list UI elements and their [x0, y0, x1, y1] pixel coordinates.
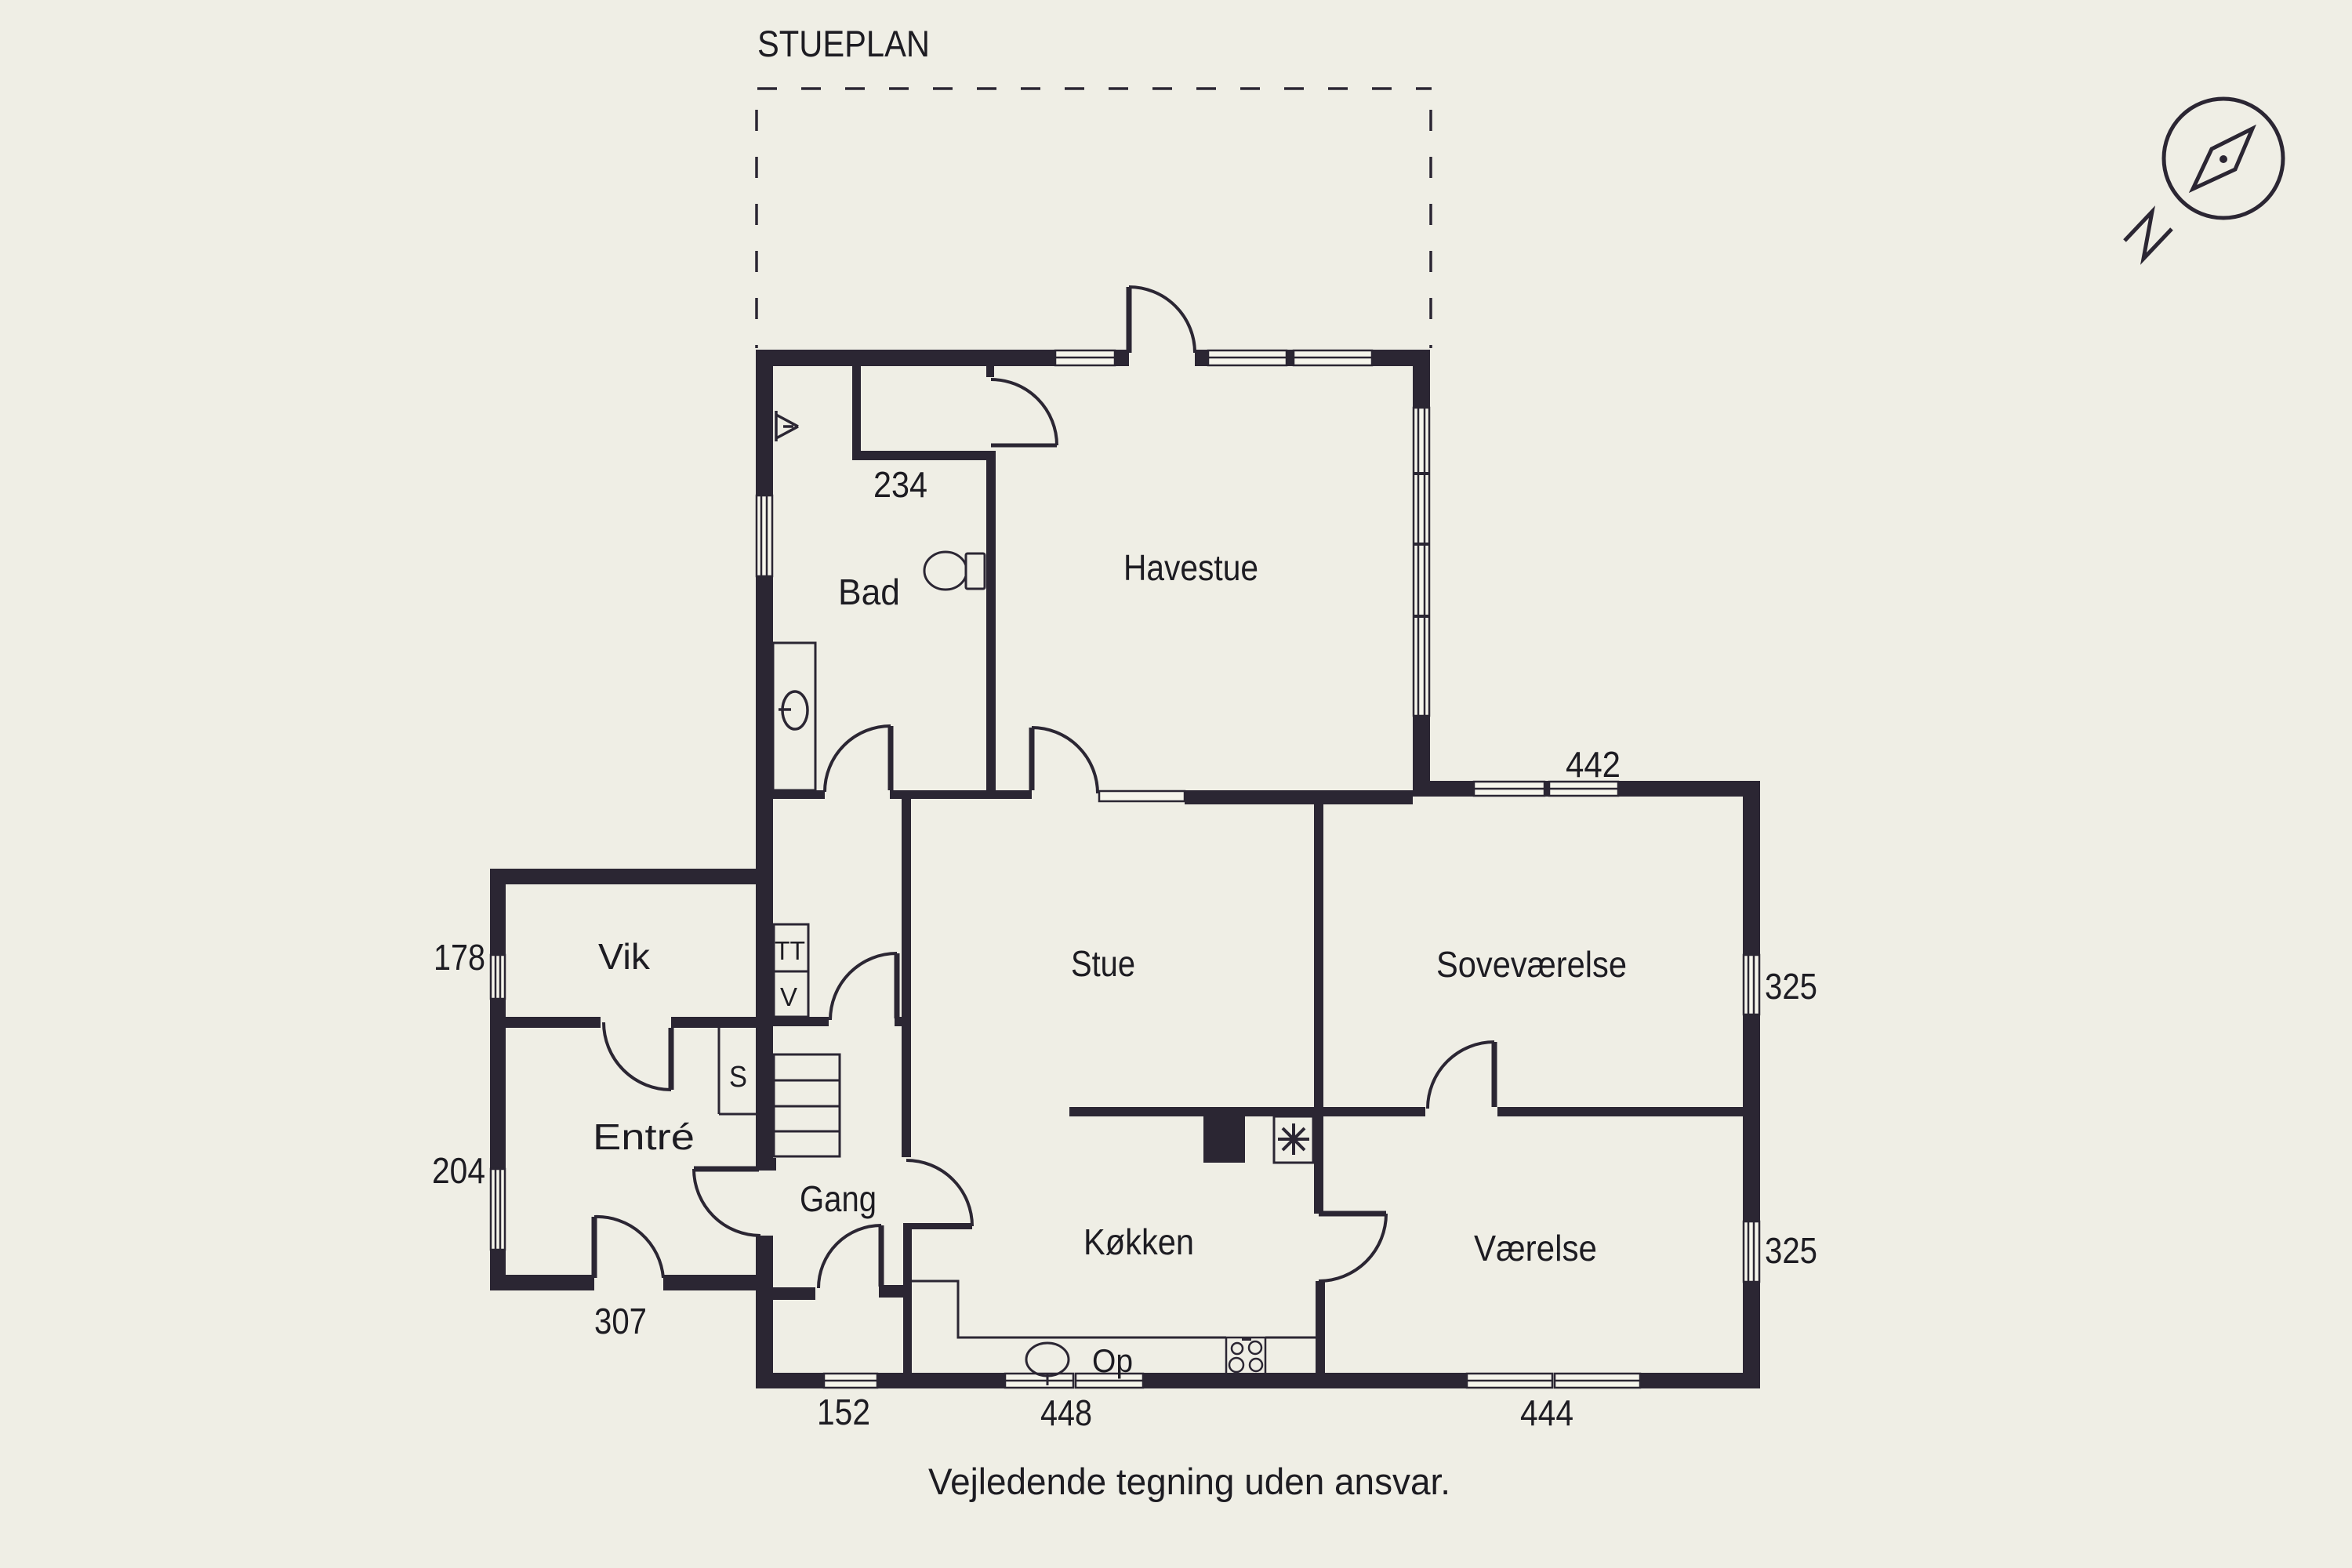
svg-text:Vik: Vik: [598, 936, 651, 977]
svg-text:Havestue: Havestue: [1123, 547, 1258, 588]
svg-text:234: 234: [873, 464, 927, 505]
svg-text:Stue: Stue: [1071, 943, 1135, 984]
svg-text:Køkken: Køkken: [1083, 1221, 1194, 1262]
svg-text:152: 152: [817, 1392, 870, 1432]
svg-text:448: 448: [1040, 1392, 1092, 1433]
svg-text:307: 307: [594, 1301, 647, 1341]
svg-text:V: V: [780, 982, 797, 1011]
svg-text:325: 325: [1765, 1230, 1817, 1271]
svg-text:Op: Op: [1092, 1342, 1133, 1379]
svg-text:444: 444: [1520, 1392, 1573, 1433]
svg-text:STUEPLAN: STUEPLAN: [757, 23, 930, 64]
svg-text:Vejledende tegning uden ansvar: Vejledende tegning uden ansvar.: [928, 1461, 1450, 1502]
svg-text:S: S: [729, 1061, 747, 1094]
svg-text:Bad: Bad: [838, 572, 900, 612]
svg-text:Værelse: Værelse: [1474, 1228, 1597, 1269]
svg-text:325: 325: [1765, 966, 1817, 1007]
svg-text:Soveværelse: Soveværelse: [1436, 944, 1627, 985]
svg-text:TT: TT: [775, 936, 805, 965]
svg-text:442: 442: [1566, 744, 1621, 785]
svg-text:Entré: Entré: [593, 1116, 695, 1157]
svg-text:204: 204: [432, 1150, 485, 1191]
svg-text:178: 178: [434, 937, 485, 978]
svg-text:Gang: Gang: [800, 1178, 877, 1219]
